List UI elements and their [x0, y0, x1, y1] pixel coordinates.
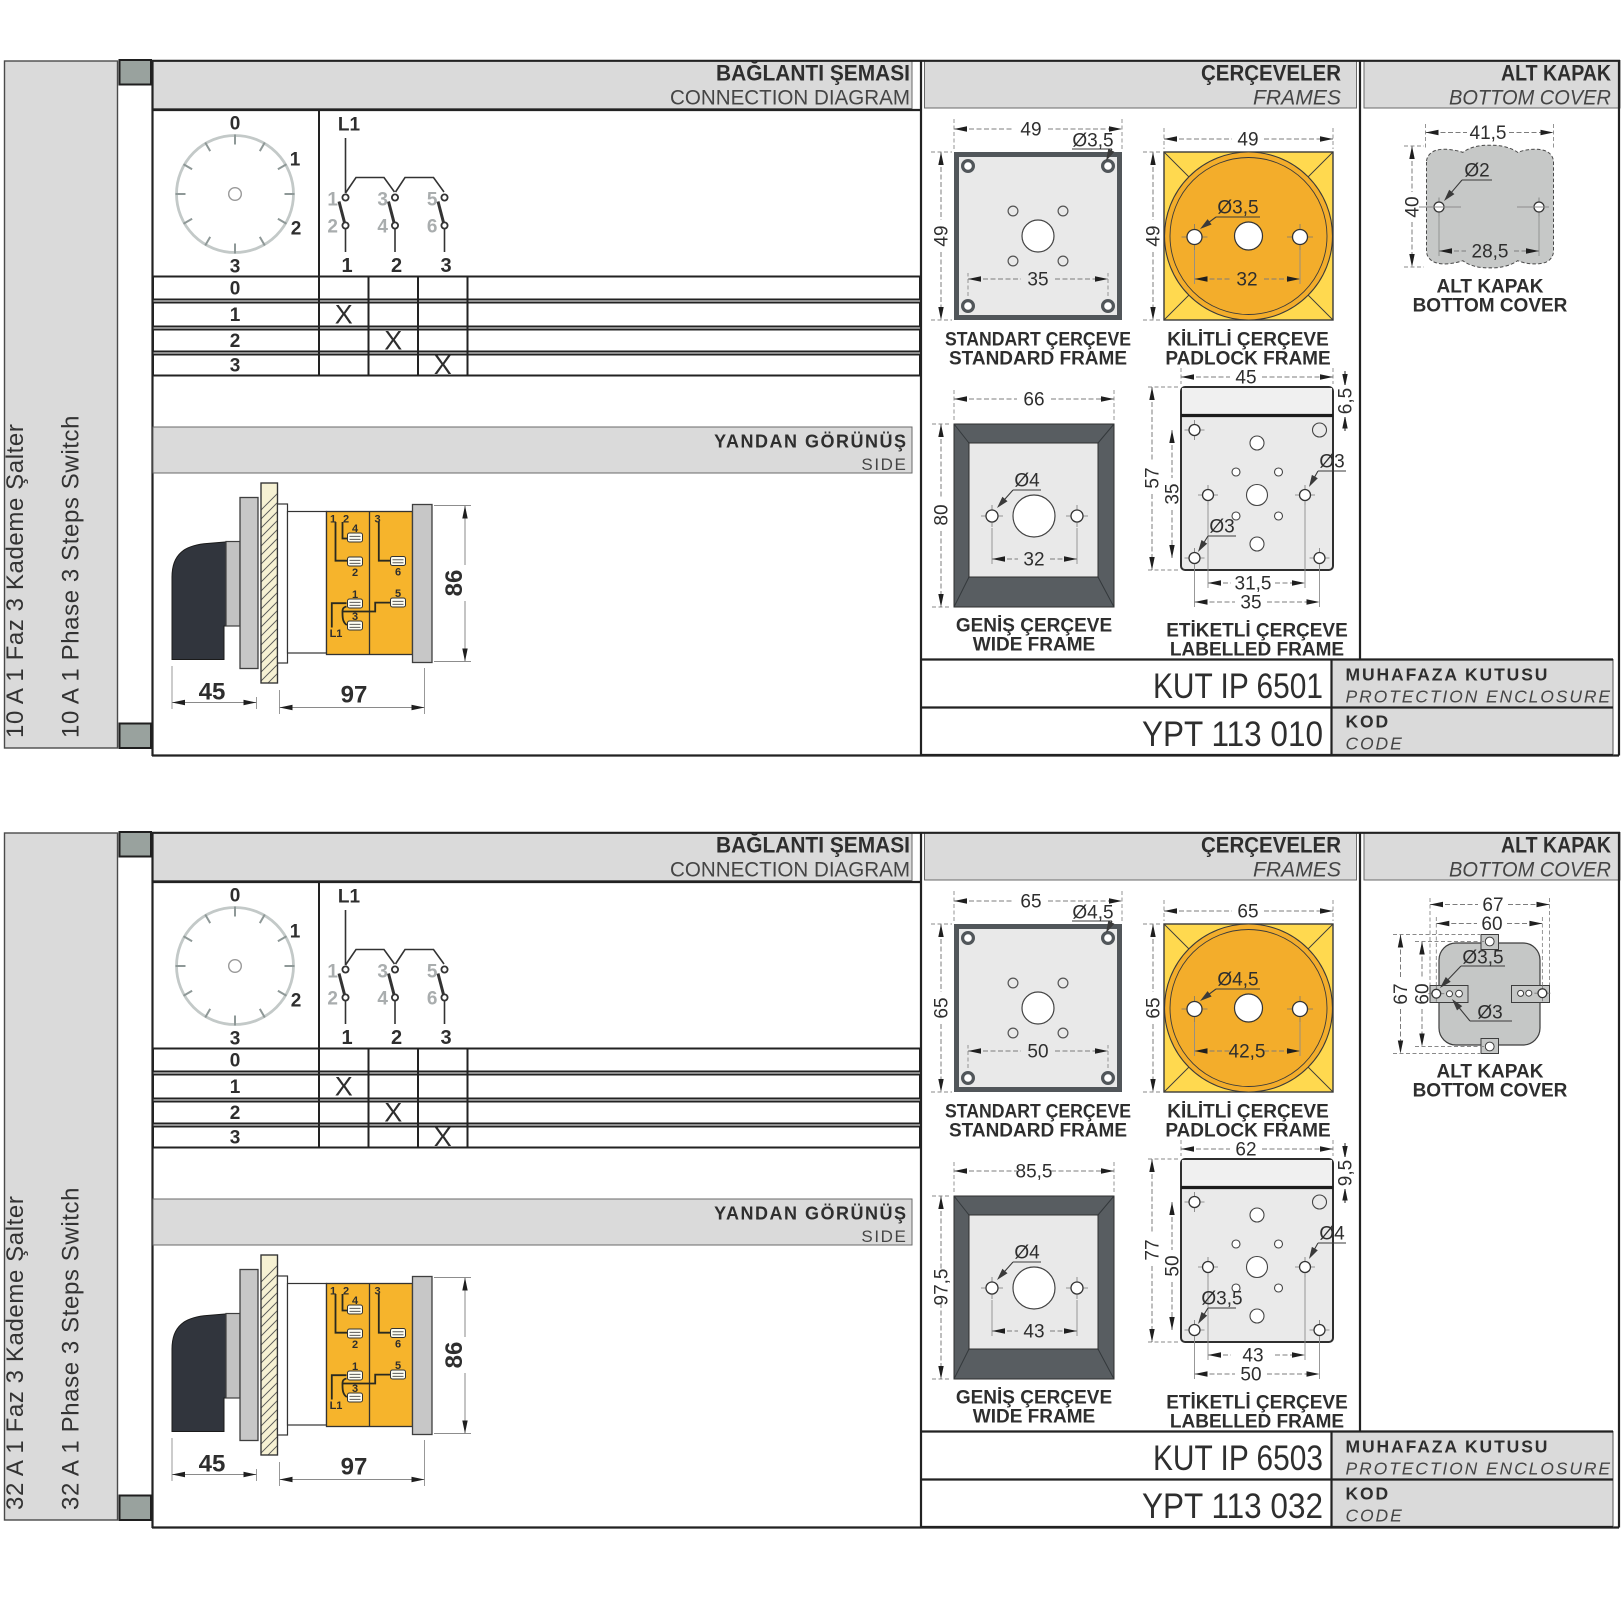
svg-text:43: 43	[1242, 1346, 1263, 1367]
svg-text:3: 3	[374, 1285, 380, 1297]
svg-text:LABELLED FRAME: LABELLED FRAME	[1170, 640, 1344, 661]
svg-text:Ø4,5: Ø4,5	[1072, 903, 1113, 924]
svg-text:49: 49	[1237, 130, 1258, 151]
svg-text:2: 2	[352, 1339, 358, 1351]
svg-text:STANDART ÇERÇEVE: STANDART ÇERÇEVE	[945, 1102, 1131, 1123]
svg-text:1: 1	[330, 513, 336, 525]
svg-text:FRAMES: FRAMES	[1253, 87, 1341, 110]
svg-text:Ø3,5: Ø3,5	[1217, 198, 1258, 219]
svg-text:35: 35	[1027, 270, 1048, 291]
svg-text:2: 2	[327, 217, 338, 238]
svg-text:CODE: CODE	[1346, 1506, 1404, 1526]
svg-text:43: 43	[1023, 1322, 1044, 1343]
svg-text:BOTTOM COVER: BOTTOM COVER	[1413, 1081, 1568, 1102]
svg-text:L1: L1	[330, 1400, 343, 1412]
svg-text:L1: L1	[338, 115, 361, 136]
svg-text:2: 2	[230, 331, 241, 352]
svg-text:1: 1	[341, 255, 352, 277]
svg-text:62: 62	[1235, 1140, 1256, 1161]
svg-text:6: 6	[395, 1338, 401, 1350]
svg-text:CODE: CODE	[1346, 734, 1404, 754]
svg-text:Ø2: Ø2	[1464, 161, 1489, 182]
svg-text:3: 3	[377, 962, 388, 983]
svg-text:2: 2	[343, 1285, 349, 1297]
svg-text:45: 45	[199, 1450, 226, 1477]
svg-text:X: X	[335, 299, 353, 329]
svg-text:4: 4	[352, 1295, 359, 1307]
svg-text:1: 1	[352, 589, 358, 601]
svg-text:3: 3	[440, 1027, 451, 1049]
svg-text:3: 3	[230, 1128, 241, 1149]
svg-text:6,5: 6,5	[1336, 388, 1357, 414]
svg-text:49: 49	[932, 225, 953, 246]
svg-text:49: 49	[1144, 225, 1165, 246]
svg-text:WIDE FRAME: WIDE FRAME	[973, 1407, 1095, 1428]
svg-text:86: 86	[441, 1342, 468, 1369]
svg-text:STANDARD FRAME: STANDARD FRAME	[949, 349, 1127, 370]
svg-text:ÇERÇEVELER: ÇERÇEVELER	[1201, 61, 1341, 86]
svg-text:YANDAN GÖRÜNÜŞ: YANDAN GÖRÜNÜŞ	[714, 432, 907, 452]
svg-text:2: 2	[391, 1027, 402, 1049]
svg-text:45: 45	[199, 678, 226, 705]
svg-text:67: 67	[1391, 983, 1412, 1004]
svg-text:3: 3	[440, 255, 451, 277]
svg-text:1: 1	[327, 962, 338, 983]
svg-text:Ø3: Ø3	[1209, 517, 1234, 538]
svg-text:MUHAFAZA KUTUSU: MUHAFAZA KUTUSU	[1346, 1437, 1550, 1457]
svg-text:50: 50	[1240, 1365, 1261, 1386]
svg-text:60: 60	[1481, 914, 1502, 935]
svg-text:KOD: KOD	[1346, 1484, 1391, 1504]
svg-text:ALT KAPAK: ALT KAPAK	[1501, 61, 1612, 86]
svg-text:32 A 1 Faz 3 Kademe Şalter: 32 A 1 Faz 3 Kademe Şalter	[2, 1196, 29, 1510]
svg-text:CONNECTION DIAGRAM: CONNECTION DIAGRAM	[670, 859, 910, 882]
svg-text:X: X	[335, 1071, 353, 1101]
svg-text:BAĞLANTI ŞEMASI: BAĞLANTI ŞEMASI	[716, 61, 910, 86]
svg-text:MUHAFAZA KUTUSU: MUHAFAZA KUTUSU	[1346, 665, 1550, 685]
svg-text:4: 4	[377, 989, 388, 1010]
svg-text:X: X	[384, 325, 402, 355]
svg-text:SIDE: SIDE	[861, 1227, 907, 1246]
svg-text:1: 1	[330, 1285, 336, 1297]
svg-text:0: 0	[230, 886, 241, 907]
svg-text:32 A 1 Phase 3 Steps Switch: 32 A 1 Phase 3 Steps Switch	[58, 1187, 85, 1510]
svg-text:2: 2	[343, 513, 349, 525]
svg-text:FRAMES: FRAMES	[1253, 859, 1341, 882]
svg-text:LABELLED FRAME: LABELLED FRAME	[1170, 1412, 1344, 1433]
svg-text:BOTTOM COVER: BOTTOM COVER	[1449, 859, 1611, 882]
svg-text:80: 80	[932, 504, 953, 525]
svg-text:WIDE FRAME: WIDE FRAME	[973, 635, 1095, 656]
svg-text:STANDARD FRAME: STANDARD FRAME	[949, 1121, 1127, 1142]
svg-text:49: 49	[1020, 120, 1041, 141]
svg-text:Ø3: Ø3	[1319, 452, 1344, 473]
svg-text:GENİŞ ÇERÇEVE: GENİŞ ÇERÇEVE	[956, 1388, 1112, 1409]
svg-text:77: 77	[1143, 1239, 1164, 1260]
svg-text:Ø4: Ø4	[1319, 1224, 1345, 1245]
svg-text:KİLİTLİ ÇERÇEVE: KİLİTLİ ÇERÇEVE	[1167, 1102, 1329, 1123]
svg-text:65: 65	[1144, 997, 1165, 1018]
svg-text:STANDART ÇERÇEVE: STANDART ÇERÇEVE	[945, 330, 1131, 351]
svg-text:GENİŞ ÇERÇEVE: GENİŞ ÇERÇEVE	[956, 616, 1112, 637]
svg-text:5: 5	[427, 962, 438, 983]
svg-text:SIDE: SIDE	[861, 455, 907, 474]
svg-text:41,5: 41,5	[1470, 123, 1507, 144]
svg-text:6: 6	[427, 989, 438, 1010]
svg-text:1: 1	[290, 922, 301, 943]
svg-text:3: 3	[352, 611, 358, 623]
svg-text:4: 4	[377, 217, 388, 238]
svg-text:3: 3	[352, 1383, 358, 1395]
svg-text:85,5: 85,5	[1016, 1162, 1053, 1183]
svg-text:40: 40	[1403, 196, 1424, 217]
svg-text:50: 50	[1027, 1042, 1048, 1063]
svg-text:1: 1	[327, 190, 338, 211]
svg-text:ÇERÇEVELER: ÇERÇEVELER	[1201, 833, 1341, 858]
svg-text:97,5: 97,5	[932, 1269, 953, 1306]
svg-text:5: 5	[427, 190, 438, 211]
svg-text:32: 32	[1023, 550, 1044, 571]
svg-text:5: 5	[395, 588, 401, 600]
svg-text:65: 65	[1020, 892, 1041, 913]
svg-text:50: 50	[1163, 1255, 1184, 1276]
svg-text:YPT 113 032: YPT 113 032	[1142, 1487, 1323, 1526]
svg-text:1: 1	[230, 305, 241, 326]
svg-text:3: 3	[230, 257, 241, 278]
svg-text:X: X	[434, 1122, 452, 1152]
svg-text:L1: L1	[338, 887, 361, 908]
svg-text:2: 2	[291, 219, 302, 240]
svg-text:31,5: 31,5	[1235, 574, 1272, 595]
svg-text:PROTECTION ENCLOSURE: PROTECTION ENCLOSURE	[1346, 687, 1613, 707]
svg-text:Ø3,5: Ø3,5	[1072, 131, 1113, 152]
svg-text:10 A 1 Faz 3 Kademe Şalter: 10 A 1 Faz 3 Kademe Şalter	[2, 424, 29, 738]
svg-text:3: 3	[230, 1029, 241, 1050]
svg-text:6: 6	[427, 217, 438, 238]
svg-text:ALT KAPAK: ALT KAPAK	[1437, 1062, 1544, 1083]
svg-text:1: 1	[230, 1077, 241, 1098]
svg-text:2: 2	[230, 1103, 241, 1124]
svg-text:0: 0	[230, 114, 241, 135]
svg-text:4: 4	[352, 523, 359, 535]
svg-text:2: 2	[327, 989, 338, 1010]
svg-text:X: X	[384, 1097, 402, 1127]
svg-text:28,5: 28,5	[1472, 242, 1509, 263]
svg-text:57: 57	[1143, 467, 1164, 488]
svg-text:YANDAN GÖRÜNÜŞ: YANDAN GÖRÜNÜŞ	[714, 1204, 907, 1224]
svg-text:6: 6	[395, 566, 401, 578]
svg-text:0: 0	[230, 279, 241, 300]
svg-text:10 A 1 Phase 3 Steps Switch: 10 A 1 Phase 3 Steps Switch	[58, 415, 85, 738]
svg-text:3: 3	[374, 513, 380, 525]
svg-text:PADLOCK FRAME: PADLOCK FRAME	[1165, 349, 1330, 370]
svg-text:ALT KAPAK: ALT KAPAK	[1437, 277, 1544, 298]
svg-text:Ø4: Ø4	[1014, 1243, 1040, 1264]
svg-text:67: 67	[1482, 895, 1503, 916]
svg-text:32: 32	[1236, 270, 1257, 291]
svg-text:ALT KAPAK: ALT KAPAK	[1501, 833, 1612, 858]
svg-text:BOTTOM COVER: BOTTOM COVER	[1449, 87, 1611, 110]
svg-text:45: 45	[1235, 368, 1256, 389]
svg-text:42,5: 42,5	[1229, 1042, 1266, 1063]
svg-text:Ø3,5: Ø3,5	[1462, 948, 1503, 969]
svg-text:97: 97	[341, 681, 368, 708]
svg-text:2: 2	[291, 991, 302, 1012]
svg-text:KUT IP 6501: KUT IP 6501	[1153, 667, 1323, 706]
svg-text:KUT IP 6503: KUT IP 6503	[1153, 1439, 1323, 1478]
svg-text:Ø3,5: Ø3,5	[1201, 1289, 1242, 1310]
svg-text:97: 97	[341, 1453, 368, 1480]
svg-text:BOTTOM COVER: BOTTOM COVER	[1413, 296, 1568, 317]
svg-text:KOD: KOD	[1346, 712, 1391, 732]
svg-text:Ø4,5: Ø4,5	[1217, 970, 1258, 991]
svg-text:ETİKETLİ ÇERÇEVE: ETİKETLİ ÇERÇEVE	[1166, 1393, 1348, 1414]
svg-text:PROTECTION ENCLOSURE: PROTECTION ENCLOSURE	[1346, 1459, 1613, 1479]
svg-text:YPT 113 010: YPT 113 010	[1142, 715, 1323, 754]
svg-text:Ø3: Ø3	[1477, 1003, 1502, 1024]
svg-text:1: 1	[290, 150, 301, 171]
svg-text:5: 5	[395, 1360, 401, 1372]
svg-text:BAĞLANTI ŞEMASI: BAĞLANTI ŞEMASI	[716, 833, 910, 858]
svg-text:0: 0	[230, 1051, 241, 1072]
svg-text:1: 1	[352, 1361, 358, 1373]
svg-text:35: 35	[1240, 593, 1261, 614]
svg-text:9,5: 9,5	[1336, 1160, 1357, 1186]
svg-text:X: X	[434, 350, 452, 380]
svg-text:ETİKETLİ ÇERÇEVE: ETİKETLİ ÇERÇEVE	[1166, 621, 1348, 642]
svg-text:66: 66	[1023, 390, 1044, 411]
svg-text:60: 60	[1413, 983, 1434, 1004]
svg-text:KİLİTLİ ÇERÇEVE: KİLİTLİ ÇERÇEVE	[1167, 330, 1329, 351]
svg-text:2: 2	[352, 567, 358, 579]
svg-text:65: 65	[1237, 902, 1258, 923]
svg-text:1: 1	[341, 1027, 352, 1049]
svg-text:3: 3	[230, 356, 241, 377]
svg-text:PADLOCK FRAME: PADLOCK FRAME	[1165, 1121, 1330, 1142]
svg-text:2: 2	[391, 255, 402, 277]
svg-text:3: 3	[377, 190, 388, 211]
svg-text:86: 86	[441, 570, 468, 597]
svg-text:CONNECTION DIAGRAM: CONNECTION DIAGRAM	[670, 87, 910, 110]
svg-text:65: 65	[932, 997, 953, 1018]
svg-text:L1: L1	[330, 628, 343, 640]
svg-text:35: 35	[1163, 483, 1184, 504]
svg-text:Ø4: Ø4	[1014, 471, 1040, 492]
